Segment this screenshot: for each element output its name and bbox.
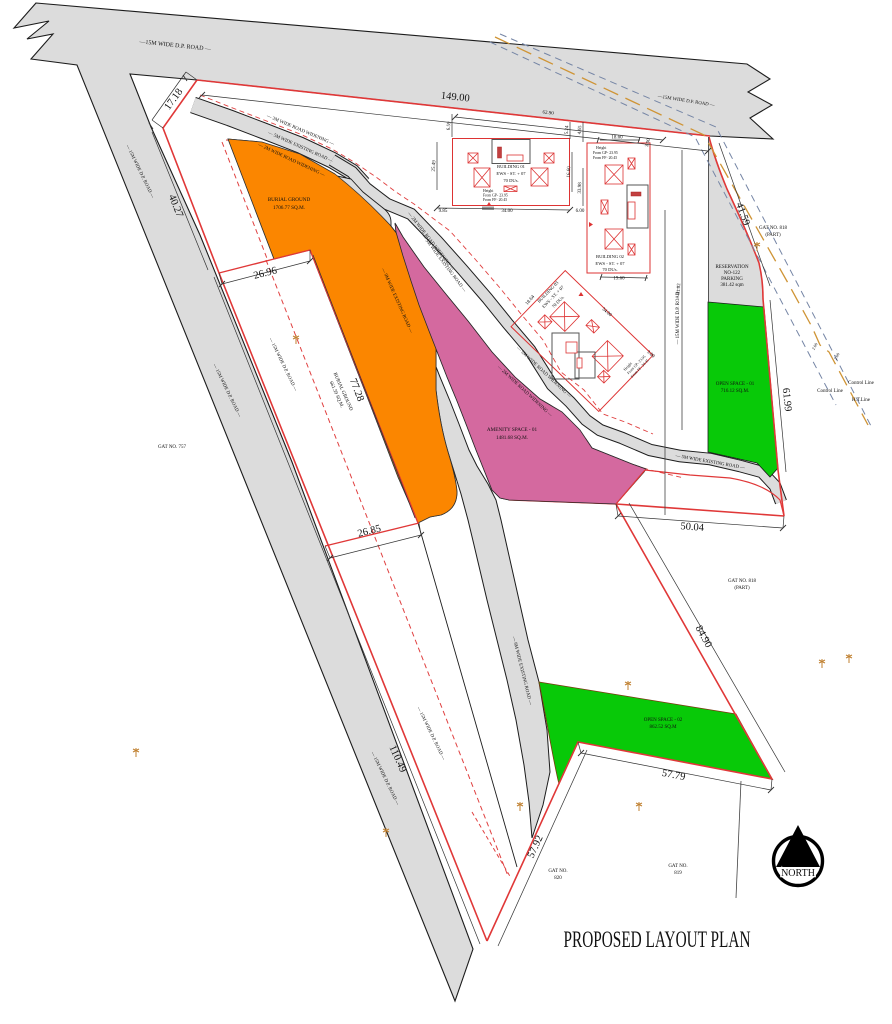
svg-text:25.49: 25.49	[432, 160, 438, 172]
svg-text:50.04: 50.04	[680, 521, 705, 534]
svg-text:1706.77 SQ.M.: 1706.77 SQ.M.	[273, 205, 305, 211]
svg-text:From FF- 20.45: From FF- 20.45	[593, 156, 617, 160]
svg-text:Height: Height	[596, 146, 607, 150]
svg-text:GAT NO. 818: GAT NO. 818	[759, 226, 788, 231]
svg-text:862.52 SQ.M: 862.52 SQ.M	[649, 725, 677, 730]
svg-text:819: 819	[674, 871, 682, 876]
svg-text:70 DUs.: 70 DUs.	[602, 267, 617, 272]
svg-text:GAT NO.: GAT NO.	[548, 869, 567, 874]
svg-text:— 15M WIDE D.P. ROAD —: — 15M WIDE D.P. ROAD —	[676, 285, 681, 345]
svg-text:NO-122: NO-122	[724, 271, 741, 276]
svg-text:From GP- 23.95: From GP- 23.95	[483, 194, 508, 198]
svg-text:716.12 SQ.M.: 716.12 SQ.M.	[721, 389, 749, 394]
svg-text:H.T.Line: H.T.Line	[852, 398, 871, 403]
svg-text:EWS - ST. + 07: EWS - ST. + 07	[496, 171, 526, 176]
svg-text:381.42 sqm: 381.42 sqm	[720, 283, 743, 288]
svg-text:EWS - ST. + 07: EWS - ST. + 07	[595, 261, 625, 266]
svg-text:AMENITY SPACE - 01: AMENITY SPACE - 01	[487, 427, 538, 433]
svg-text:Control Line: Control Line	[817, 389, 843, 394]
svg-text:From FF- 20.45: From FF- 20.45	[483, 198, 507, 202]
svg-text:4.65: 4.65	[578, 125, 584, 135]
svg-text:Control Line: Control Line	[848, 381, 874, 386]
svg-text:Height: Height	[483, 189, 494, 193]
svg-text:34.00: 34.00	[501, 209, 513, 214]
svg-text:9.85: 9.85	[439, 209, 448, 214]
svg-text:(PART): (PART)	[734, 586, 750, 591]
svg-text:5.24: 5.24	[565, 125, 571, 135]
svg-text:33.98: 33.98	[578, 182, 583, 194]
svg-text:BUILDING 02: BUILDING 02	[596, 254, 625, 259]
svg-text:PARKING: PARKING	[721, 277, 743, 282]
svg-text:820: 820	[554, 876, 562, 881]
svg-text:(PART): (PART)	[765, 233, 781, 238]
svg-text:OPEN SPACE - 01: OPEN SPACE - 01	[716, 382, 755, 387]
svg-text:19.60: 19.60	[613, 277, 625, 282]
svg-text:GAT NO. 818: GAT NO. 818	[728, 579, 757, 584]
svg-text:70 DUs.: 70 DUs.	[503, 178, 518, 183]
svg-text:18.60: 18.60	[611, 136, 623, 141]
svg-text:BUILDING 01: BUILDING 01	[497, 164, 526, 169]
svg-text:GAT NO.: GAT NO.	[668, 864, 687, 869]
svg-text:RESERVATION: RESERVATION	[715, 265, 749, 270]
svg-text:NORTH: NORTH	[781, 868, 815, 879]
svg-text:From GP- 23.95: From GP- 23.95	[593, 151, 618, 155]
svg-text:6.00: 6.00	[576, 209, 585, 214]
svg-text:BURIAL GROUND: BURIAL GROUND	[268, 197, 311, 203]
svg-text:1481.68 SQ.M.: 1481.68 SQ.M.	[496, 435, 528, 441]
svg-text:16.60: 16.60	[567, 166, 573, 178]
svg-text:PROPOSED LAYOUT PLAN: PROPOSED LAYOUT PLAN	[564, 927, 751, 952]
svg-text:OPEN SPACE - 02: OPEN SPACE - 02	[644, 718, 683, 723]
svg-text:GAT NO. 757: GAT NO. 757	[158, 445, 187, 450]
svg-text:6.59: 6.59	[447, 121, 453, 131]
